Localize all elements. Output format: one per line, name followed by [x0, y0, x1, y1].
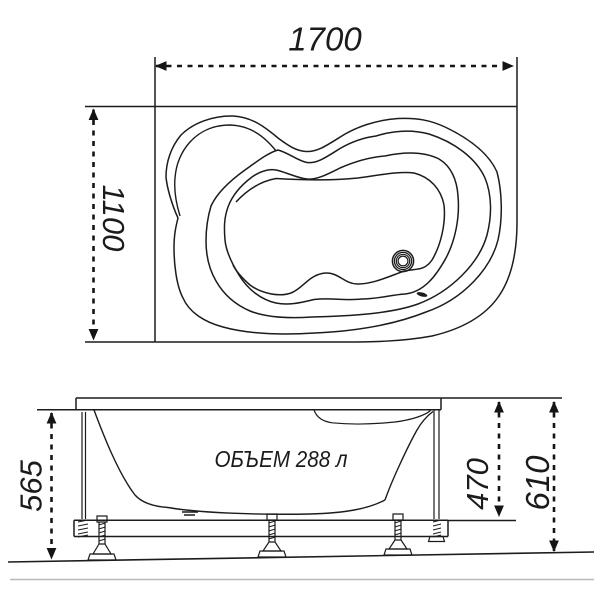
svg-text:470: 470	[460, 458, 495, 510]
svg-text:ОБЪЕМ 288 л: ОБЪЕМ 288 л	[215, 446, 348, 472]
svg-text:565: 565	[14, 459, 49, 511]
svg-text:610: 610	[519, 455, 556, 511]
svg-text:1700: 1700	[288, 21, 362, 58]
svg-text:1100: 1100	[96, 185, 131, 252]
